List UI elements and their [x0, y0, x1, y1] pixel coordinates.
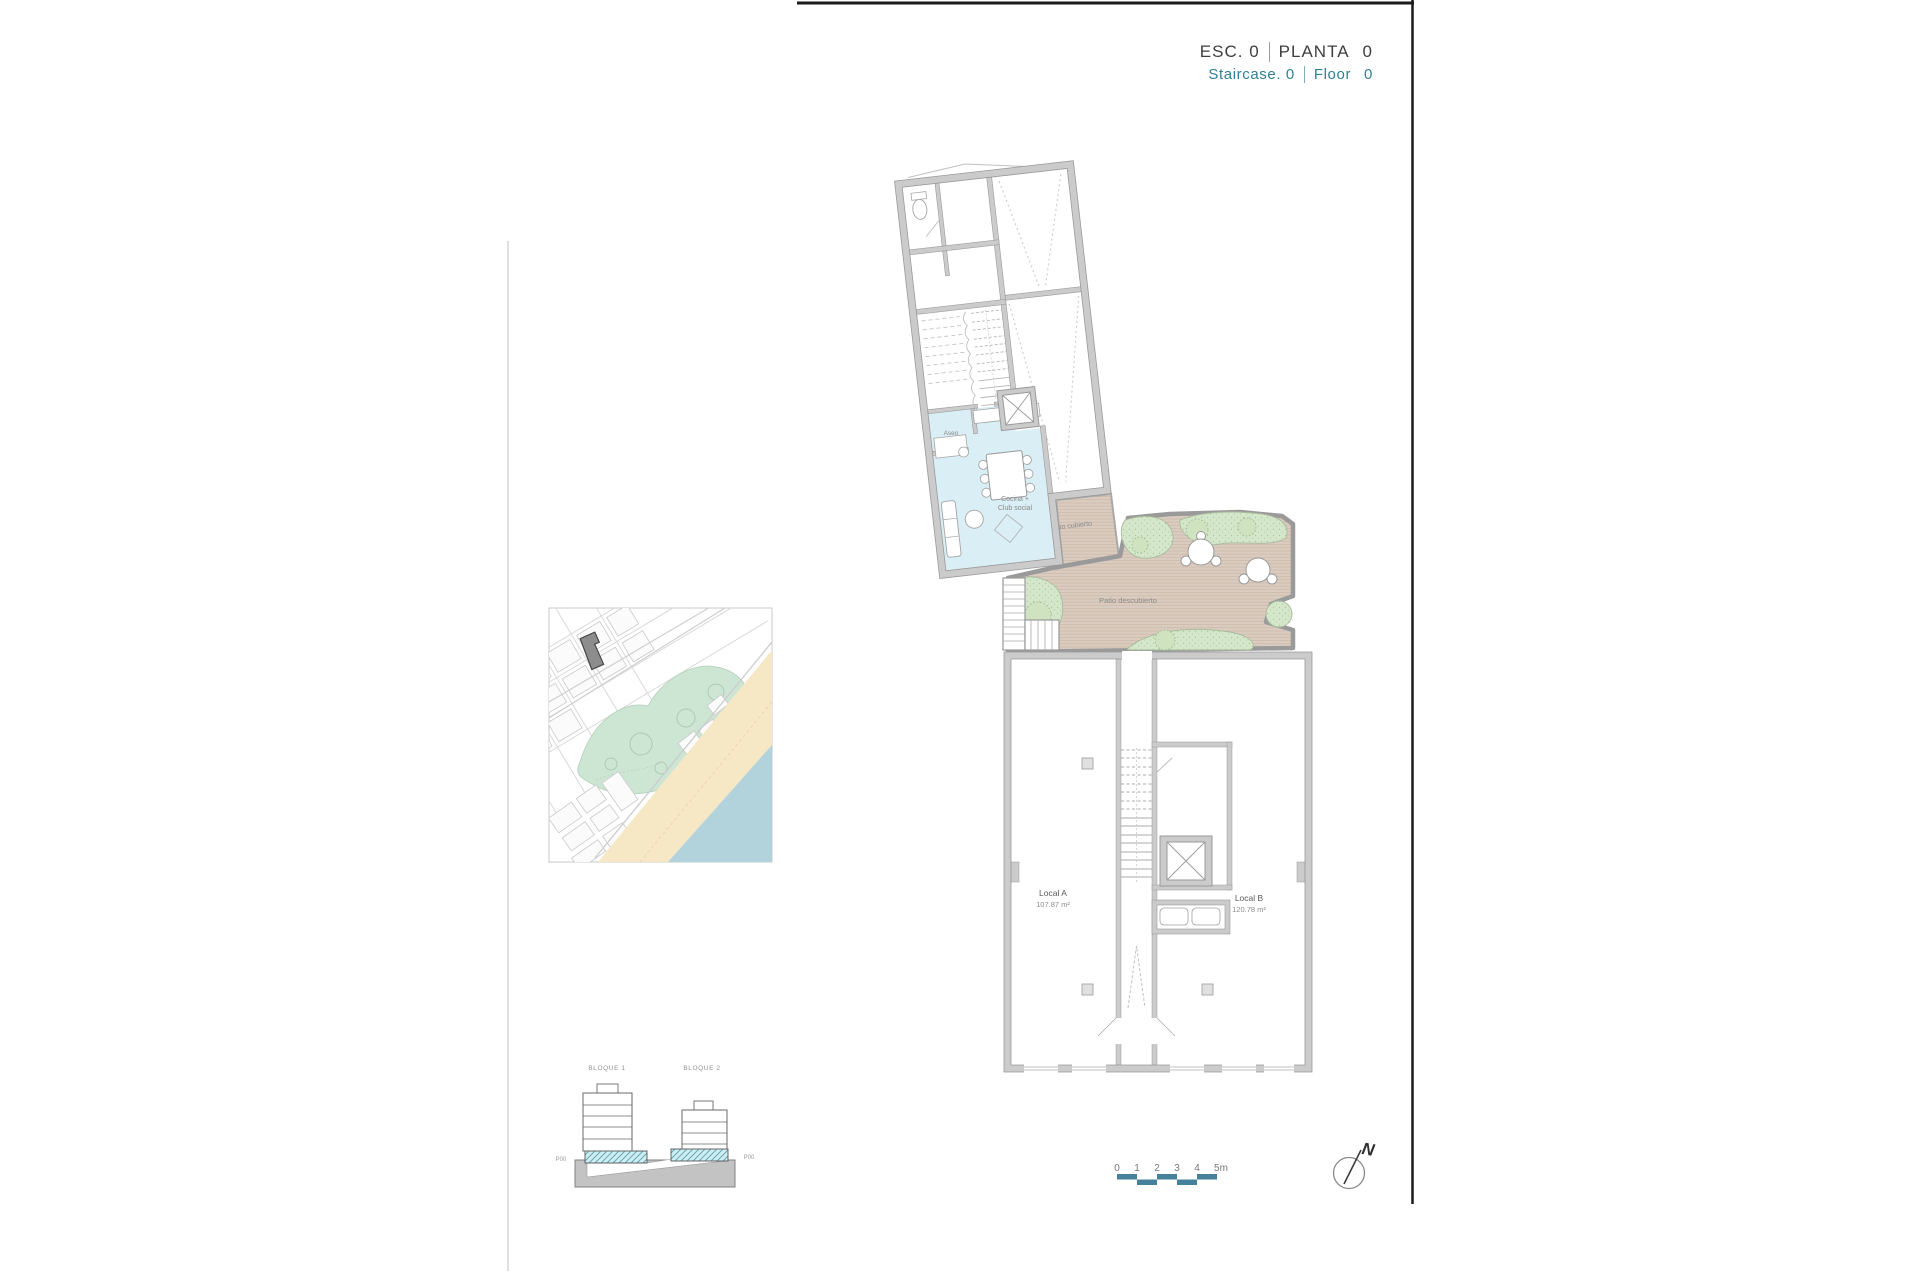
plan-sheet: ESC. 0 PLANTA 0 Staircase. 0 Floor 0 — [0, 0, 1920, 1280]
title-separator-en — [1304, 66, 1305, 83]
title-block: ESC. 0 PLANTA 0 Staircase. 0 Floor 0 — [1200, 42, 1373, 83]
p00-left-label: P00 — [556, 1157, 567, 1163]
local-a-name: Local A — [1039, 888, 1067, 898]
floor-plan-canvas: Patio cubierto Patio descubierto — [0, 0, 1920, 1280]
core-elevator-icon — [1160, 836, 1212, 886]
scale-tick-4: 4 — [1194, 1163, 1200, 1174]
cocina-label-line2: Club social — [998, 505, 1033, 512]
title-es: ESC. 0 PLANTA 0 — [1200, 42, 1373, 62]
bloque2-label: BLOQUE 2 — [683, 1065, 720, 1072]
cocina-label-line1: Cocina + — [1001, 496, 1029, 503]
local-b-name: Local B — [1235, 893, 1264, 903]
title-en: Staircase. 0 Floor 0 — [1208, 66, 1373, 83]
location-map — [420, 498, 800, 869]
p00-band-block1 — [585, 1151, 647, 1163]
bloque1-label: BLOQUE 1 — [588, 1065, 625, 1072]
compass-needle — [1344, 1150, 1361, 1184]
scale-tick-3: 3 — [1174, 1163, 1180, 1174]
staircase-label: Staircase. — [1208, 66, 1281, 83]
aseo-label: Aseo — [944, 430, 959, 437]
planta-value: 0 — [1363, 42, 1373, 62]
p00-band-block2 — [671, 1149, 728, 1161]
local-a-area: 107.87 m² — [1036, 900, 1070, 909]
tower-block2 — [682, 1101, 727, 1149]
floor-value: 0 — [1364, 66, 1373, 83]
tower-block1 — [583, 1084, 632, 1151]
north-arrow: N — [1334, 1139, 1377, 1188]
p00-right-label: P00 — [744, 1155, 755, 1161]
upper-elevator-icon — [997, 387, 1039, 431]
scale-bar-segments — [1117, 1174, 1217, 1185]
staircase-value: 0 — [1286, 66, 1295, 83]
title-separator — [1269, 42, 1270, 62]
scale-tick-2: 2 — [1154, 1163, 1160, 1174]
scale-tick-5: 5m — [1214, 1163, 1228, 1174]
patio-descubierto-label: Patio descubierto — [1099, 596, 1157, 605]
local-b-area: 120.78 m² — [1232, 905, 1266, 914]
service-niche — [1152, 900, 1230, 934]
floor-label: Floor — [1314, 66, 1351, 83]
esc-value: 0 — [1249, 42, 1259, 62]
esc-label: ESC. — [1200, 42, 1244, 62]
scale-tick-1: 1 — [1134, 1163, 1140, 1174]
elevation-diagram: BLOQUE 1 BLOQUE 2 — [556, 1065, 755, 1187]
planta-label: PLANTA — [1279, 42, 1350, 62]
scale-tick-0: 0 — [1114, 1163, 1120, 1174]
scale-bar: 0 1 2 3 4 5m — [1114, 1163, 1228, 1185]
lower-building-plan: Local A 107.87 m² Local B 120.78 m² — [1004, 651, 1312, 1073]
north-label: N — [1360, 1139, 1376, 1160]
